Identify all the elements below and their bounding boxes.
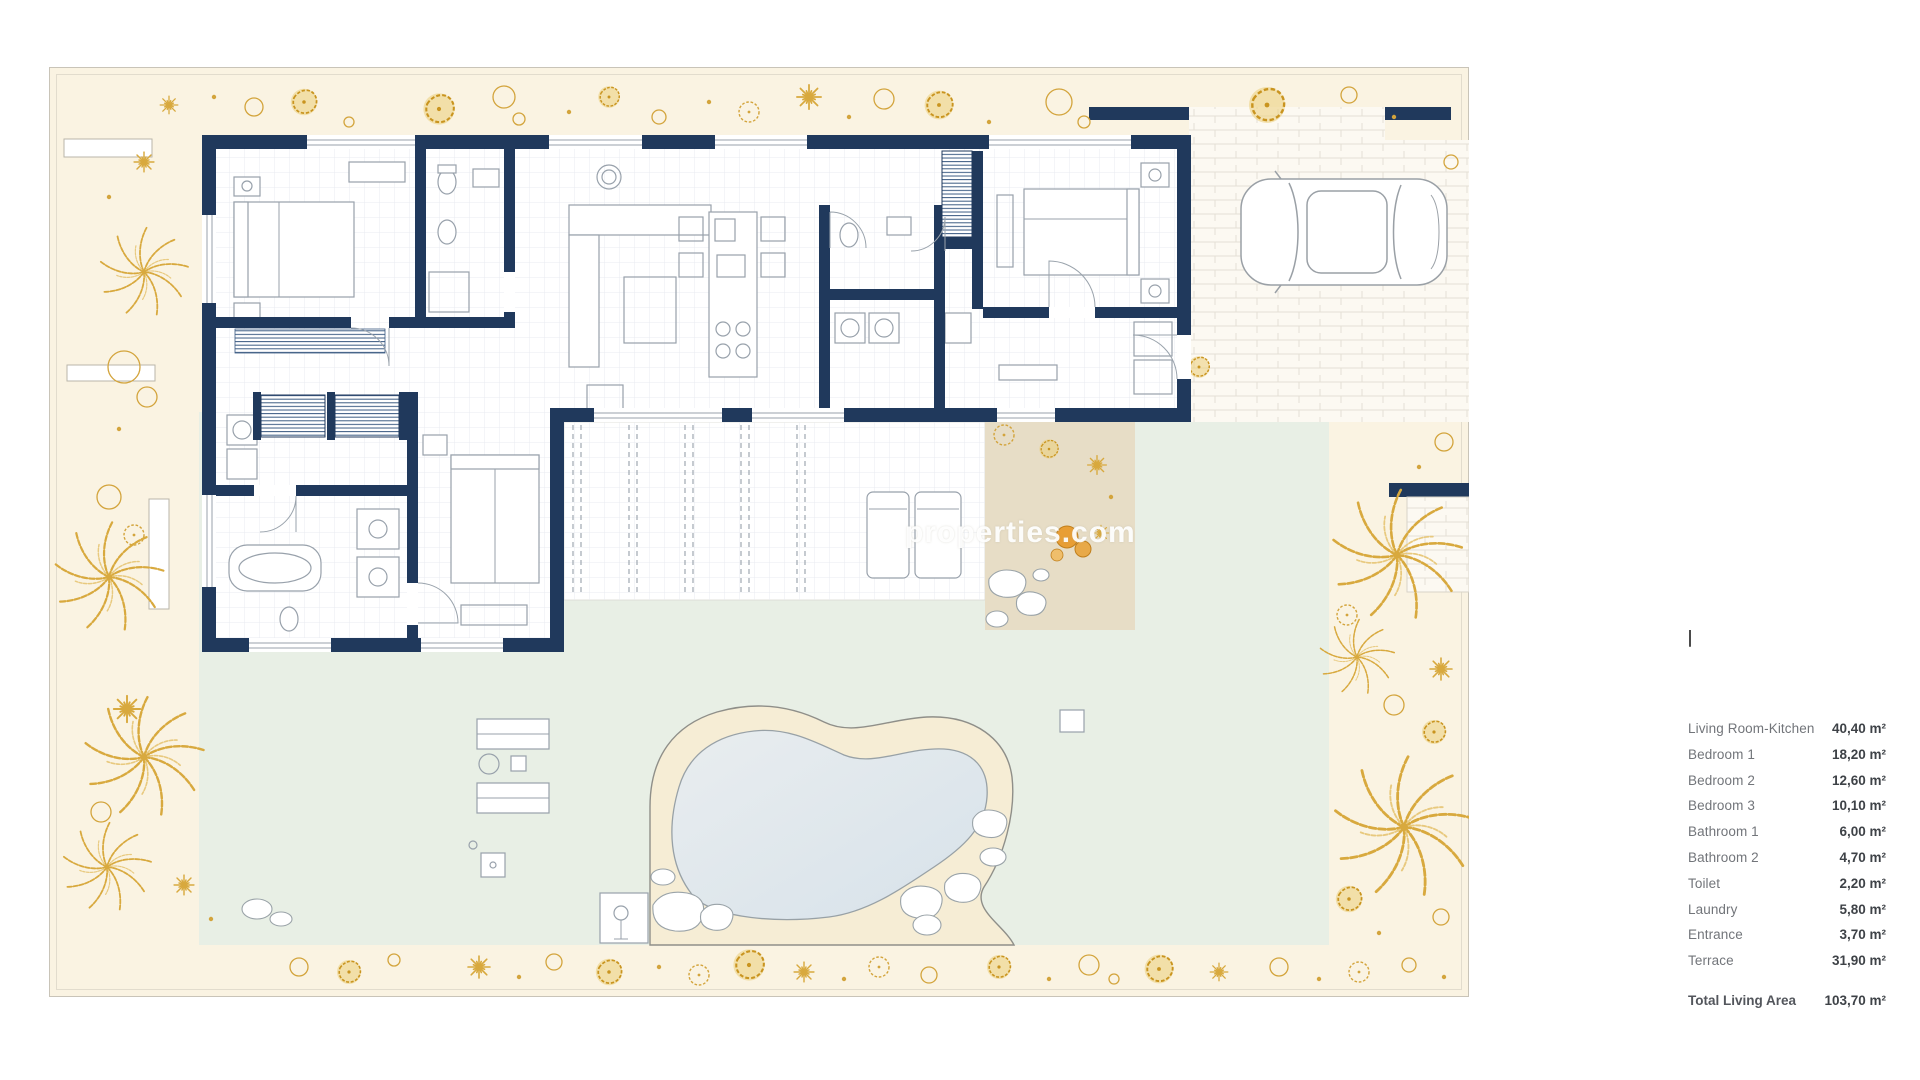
- stray-tick-mark: [1689, 630, 1691, 647]
- legend-row: Entrance 3,70 m²: [1688, 922, 1886, 948]
- legend-label: Bedroom 3: [1688, 793, 1755, 819]
- car-icon: [1241, 171, 1447, 293]
- floor-plan: [49, 67, 1469, 997]
- sand-mat: [985, 416, 1135, 630]
- legend-row: Bedroom 2 12,60 m²: [1688, 768, 1886, 794]
- legend-label: Laundry: [1688, 897, 1738, 923]
- outdoor-shower: [600, 893, 648, 943]
- legend-value: 6,00 m²: [1839, 819, 1886, 845]
- legend-total-label: Total Living Area: [1688, 988, 1796, 1014]
- legend-row: Bedroom 3 10,10 m²: [1688, 793, 1886, 819]
- legend-label: Bathroom 2: [1688, 845, 1759, 871]
- pergola-deck: [564, 422, 985, 600]
- legend-row: Terrace 31,90 m²: [1688, 948, 1886, 974]
- legend-label: Living Room-Kitchen: [1688, 716, 1814, 742]
- area-legend: Living Room-Kitchen 40,40 m² Bedroom 1 1…: [1688, 716, 1886, 1014]
- floor-plan-svg: [49, 67, 1469, 997]
- legend-row: Bathroom 2 4,70 m²: [1688, 845, 1886, 871]
- legend-label: Terrace: [1688, 948, 1734, 974]
- legend-row: Toilet 2,20 m²: [1688, 871, 1886, 897]
- legend-label: Bathroom 1: [1688, 819, 1759, 845]
- legend-total-row: Total Living Area 103,70 m²: [1688, 988, 1886, 1014]
- legend-value: 2,20 m²: [1839, 871, 1886, 897]
- legend-row: Bathroom 1 6,00 m²: [1688, 819, 1886, 845]
- legend-label: Bedroom 1: [1688, 742, 1755, 768]
- legend-label: Bedroom 2: [1688, 768, 1755, 794]
- legend-value: 10,10 m²: [1832, 793, 1886, 819]
- legend-value: 40,40 m²: [1832, 716, 1886, 742]
- legend-row: Living Room-Kitchen 40,40 m²: [1688, 716, 1886, 742]
- legend-value: 5,80 m²: [1839, 897, 1886, 923]
- legend-value: 3,70 m²: [1839, 922, 1886, 948]
- legend-total-value: 103,70 m²: [1824, 988, 1886, 1014]
- legend-value: 4,70 m²: [1839, 845, 1886, 871]
- legend-value: 31,90 m²: [1832, 948, 1886, 974]
- legend-row: Bedroom 1 18,20 m²: [1688, 742, 1886, 768]
- legend-label: Toilet: [1688, 871, 1720, 897]
- floor-plan-page: properties.com Living Room-Kitchen 40,40…: [0, 0, 1920, 1080]
- legend-value: 18,20 m²: [1832, 742, 1886, 768]
- legend-row: Laundry 5,80 m²: [1688, 897, 1886, 923]
- legend-value: 12,60 m²: [1832, 768, 1886, 794]
- pool: [650, 706, 1014, 945]
- legend-label: Entrance: [1688, 922, 1743, 948]
